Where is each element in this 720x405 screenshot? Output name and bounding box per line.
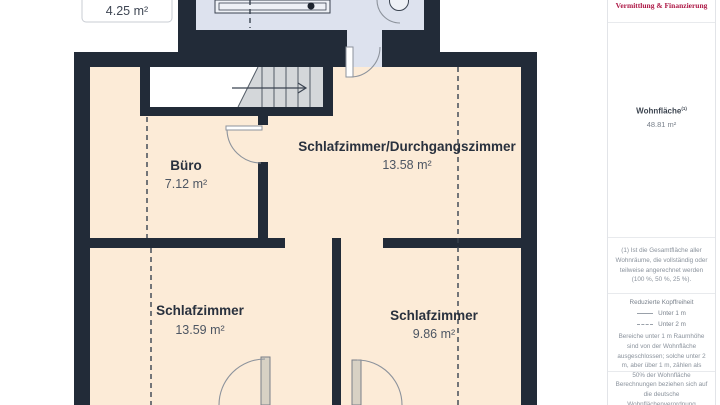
wall-segment [383,238,521,248]
wall-segment [424,0,440,52]
wall-segment [424,52,537,67]
living-area-summary: Wohnfläche(1) 48.81 m² [608,106,715,129]
room-area-schlafzimmer-1: 13.59 m² [175,323,224,337]
wall-segment [258,162,268,238]
legend-item-under-1m: Unter 1 m [608,310,715,317]
footnote-marker: (1) [681,106,687,111]
wall-segment [382,52,424,67]
legend-item-label: Unter 1 m [658,310,686,317]
wall-segment [90,238,285,248]
bedroom-door-leaf [261,357,270,405]
wall-segment [196,30,347,52]
floorplan-page: 4.25 m² Büro 7.12 m² Schlafzimmer/Durchg… [0,0,720,405]
room-label-schlafzimmer-2: Schlafzimmer [390,308,479,323]
legend-note: Bereiche unter 1 m Raumhöhe sind von der… [615,332,708,381]
info-panel: Vermittlung & Finanzierung Wohnfläche(1)… [607,0,716,405]
wall-segment [140,107,333,116]
calculation-note: Berechnungen beziehen sich auf die deuts… [615,380,708,405]
room-area-durchgangszimmer: 13.58 m² [382,158,431,172]
floorplan-drawing: 4.25 m² Büro 7.12 m² Schlafzimmer/Durchg… [0,0,600,405]
divider [608,371,715,372]
room-area-buero: 7.12 m² [165,177,207,191]
bedroom-door-leaf [352,360,361,405]
living-area-label-text: Wohnfläche [636,107,681,116]
office-door-leaf [226,126,262,130]
living-area-label: Wohnfläche(1) [608,106,715,116]
wall-segment [178,0,196,52]
room-label-buero: Büro [170,158,202,173]
area-tag: 4.25 m² [82,0,172,22]
divider [608,293,715,294]
wall-segment [332,238,341,405]
room-area-schlafzimmer-2: 9.86 m² [413,327,455,341]
room-label-schlafzimmer-1: Schlafzimmer [156,303,245,318]
wall-segment [74,52,347,67]
divider [608,237,715,238]
room-label-durchgangszimmer: Schlafzimmer/Durchgangszimmer [298,139,516,154]
living-area-value: 48.81 m² [608,120,715,129]
wall-segment [382,30,424,52]
wall-segment [74,52,90,405]
footnote-text: (1) Ist die Gesamtfläche aller Wohnräume… [615,246,708,285]
legend-title: Reduzierte Kopffreiheit [608,299,715,306]
divider [608,22,715,23]
wall-segment [258,115,268,125]
solid-line-swatch [637,313,653,314]
wall-segment [323,67,333,116]
main-floor-area [90,67,521,405]
wall-segment [521,52,537,405]
sink-drain-dot [308,3,315,10]
brand-tagline: Vermittlung & Finanzierung [608,1,715,10]
area-tag-value: 4.25 m² [106,4,148,18]
staircase [150,67,333,107]
dashed-line-swatch [637,324,653,325]
legend-item-label: Unter 2 m [658,321,686,328]
hallway-door-leaf [346,47,353,77]
legend-item-under-2m: Unter 2 m [608,321,715,328]
